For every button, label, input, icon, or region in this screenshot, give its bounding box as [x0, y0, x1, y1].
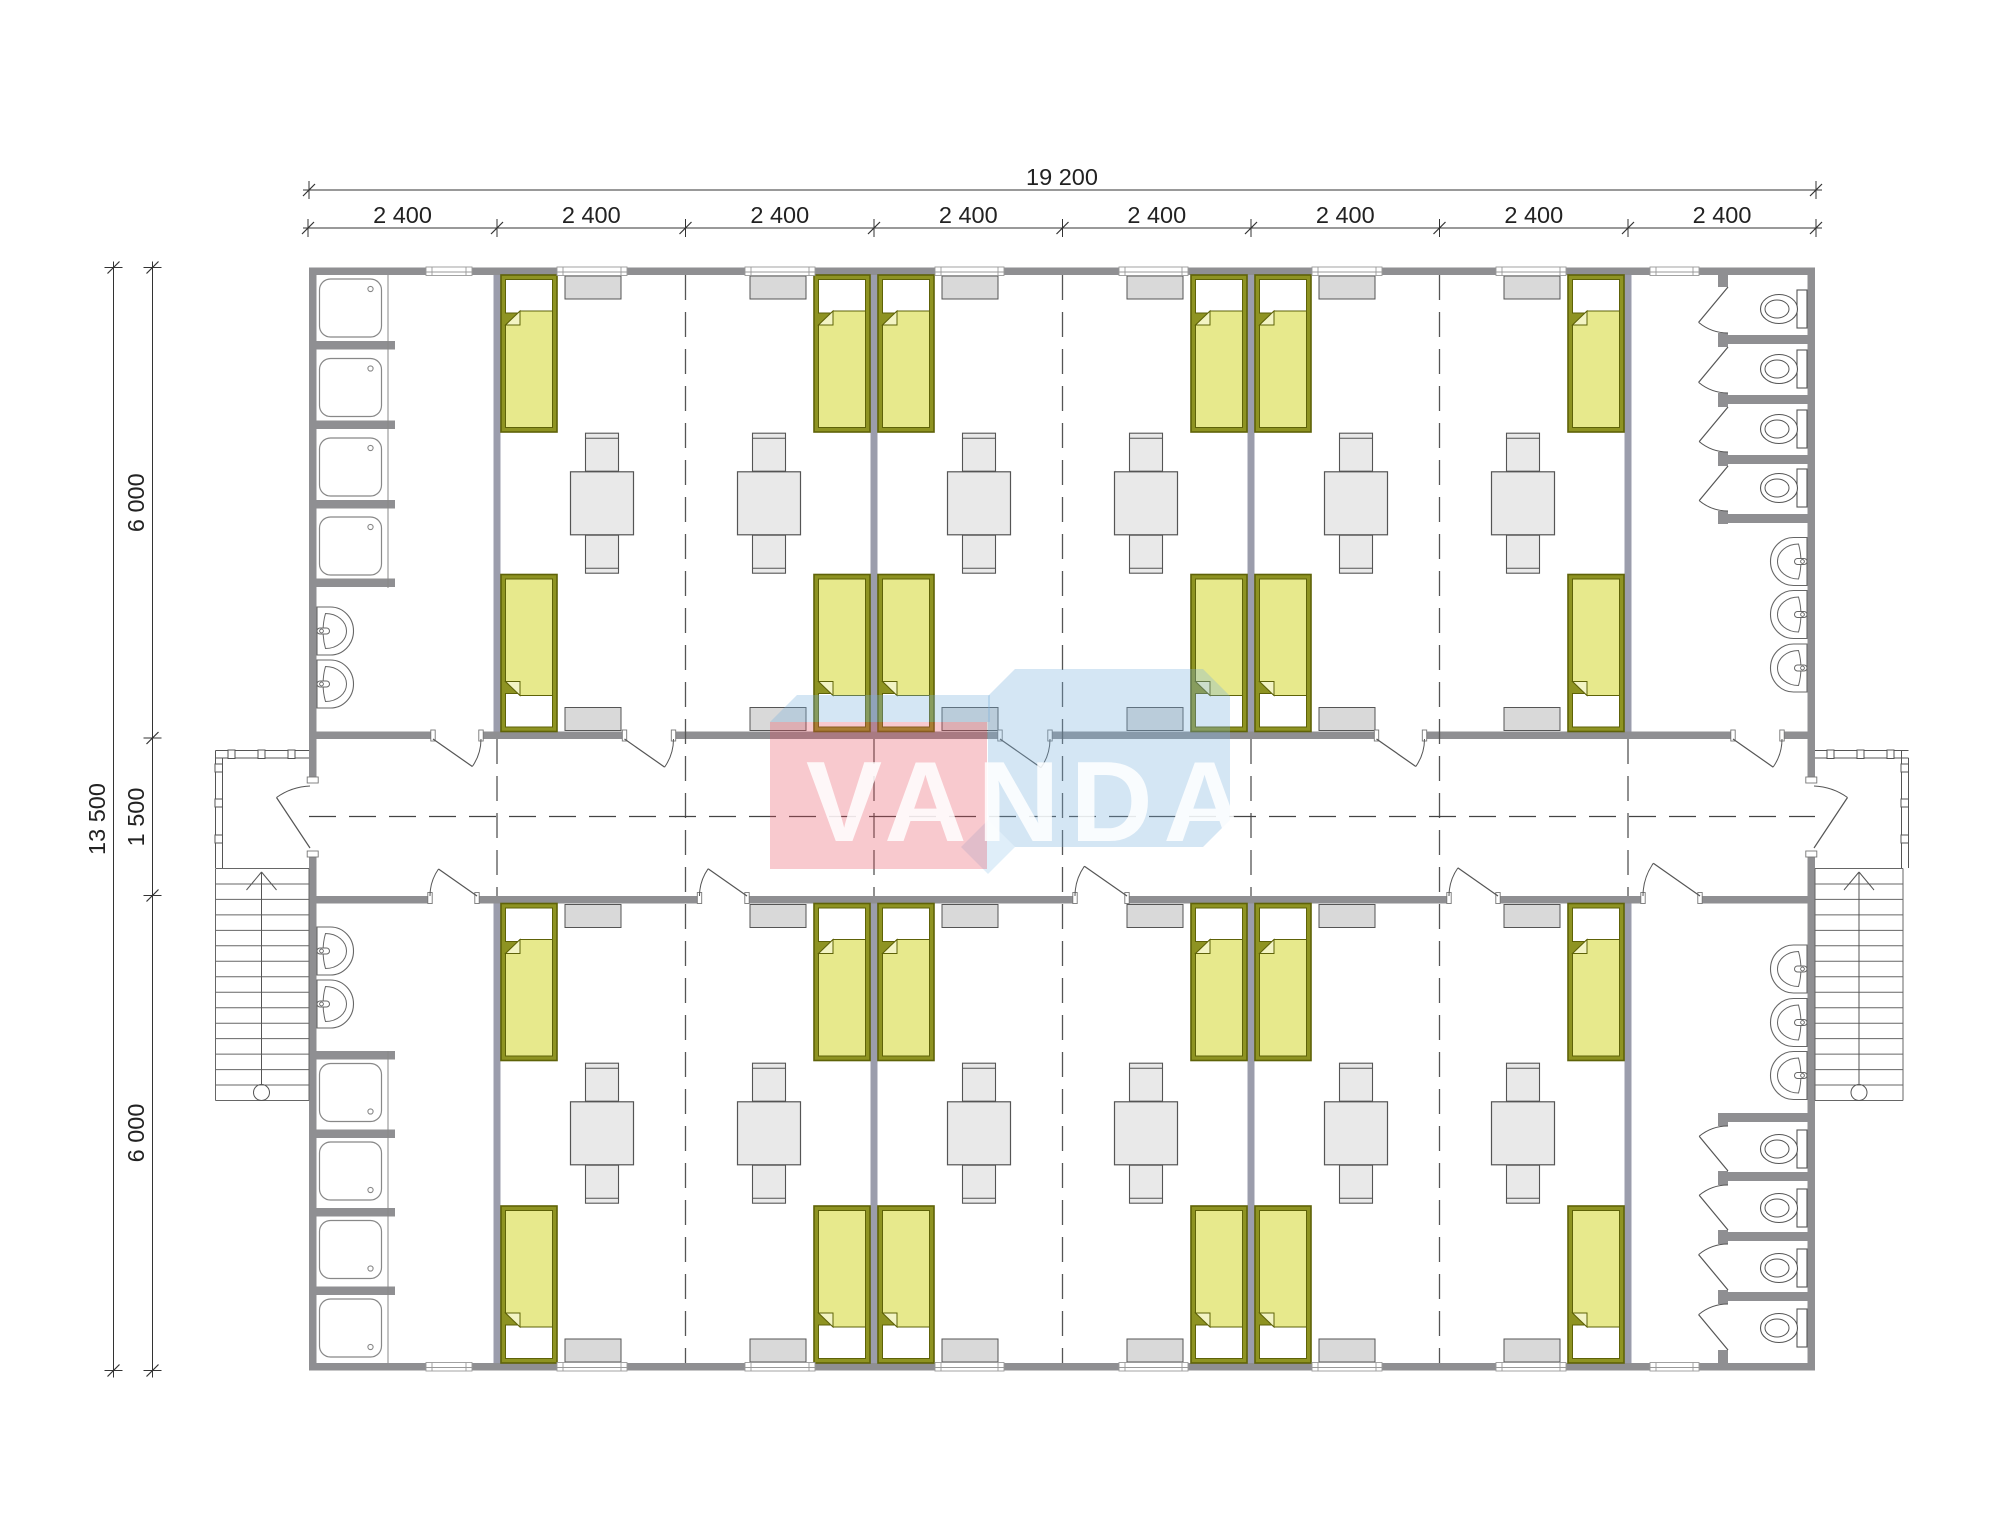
svg-text:2 400: 2 400	[1316, 202, 1375, 228]
svg-text:2 400: 2 400	[1127, 202, 1186, 228]
svg-text:2 400: 2 400	[562, 202, 621, 228]
svg-text:13 500: 13 500	[84, 783, 110, 855]
svg-text:6 000: 6 000	[123, 1104, 149, 1163]
svg-text:VANDA: VANDA	[806, 739, 1256, 866]
svg-text:6 000: 6 000	[123, 473, 149, 532]
svg-text:2 400: 2 400	[750, 202, 809, 228]
svg-text:2 400: 2 400	[1504, 202, 1563, 228]
svg-text:1 500: 1 500	[123, 788, 149, 847]
svg-text:2 400: 2 400	[1693, 202, 1752, 228]
svg-text:19 200: 19 200	[1026, 164, 1098, 190]
svg-text:2 400: 2 400	[373, 202, 432, 228]
svg-text:2 400: 2 400	[939, 202, 998, 228]
